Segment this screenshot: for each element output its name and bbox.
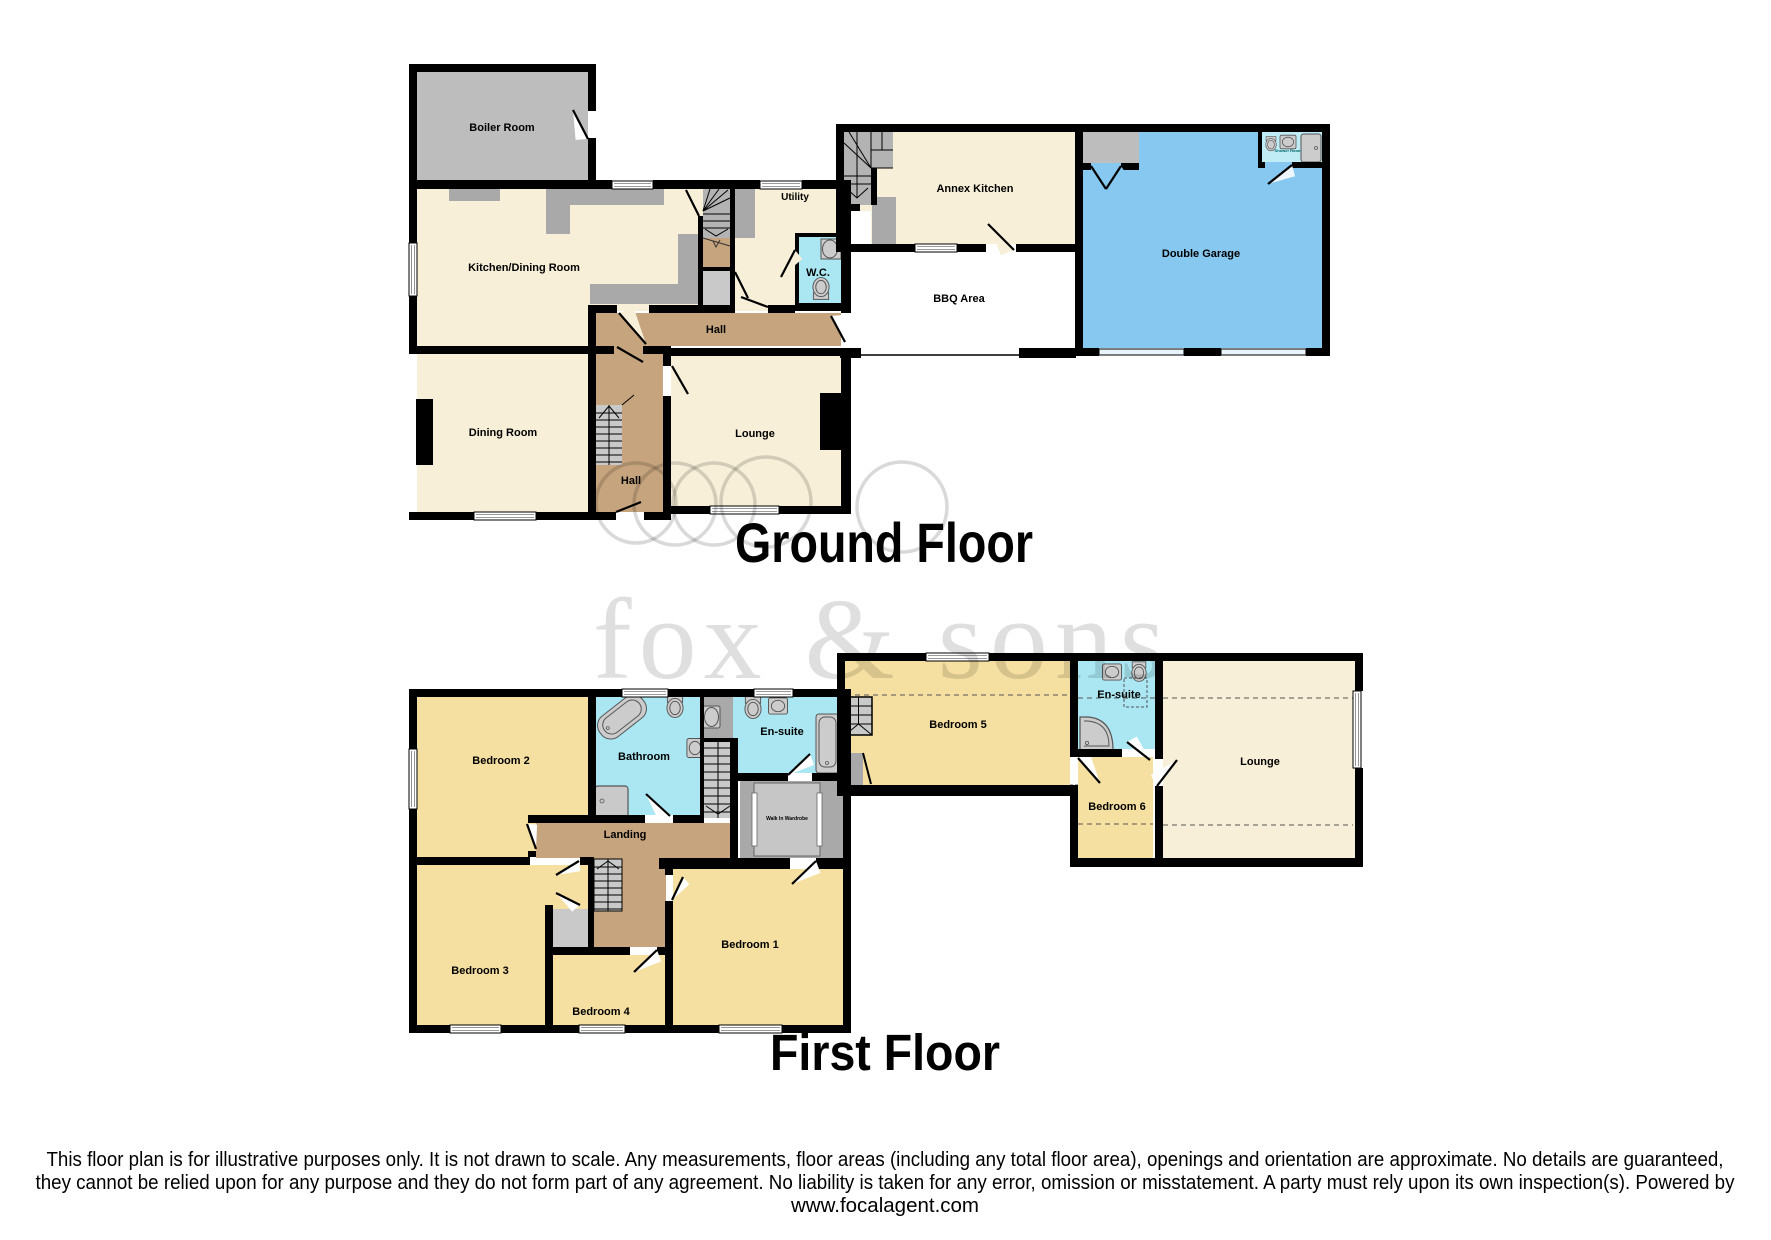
svg-text:Lounge: Lounge bbox=[1240, 756, 1280, 768]
svg-text:Shower Room: Shower Room bbox=[1275, 148, 1302, 153]
svg-text:Utility: Utility bbox=[781, 192, 809, 203]
svg-text:Bedroom 3: Bedroom 3 bbox=[451, 965, 508, 977]
svg-text:BBQ Area: BBQ Area bbox=[933, 293, 985, 305]
svg-text:Bedroom 5: Bedroom 5 bbox=[929, 719, 986, 731]
svg-text:Ground Floor: Ground Floor bbox=[735, 511, 1033, 574]
svg-text:This floor plan is for illustr: This floor plan is for illustrative purp… bbox=[47, 1148, 1724, 1171]
svg-text:Dining Room: Dining Room bbox=[469, 427, 538, 439]
svg-text:Landing: Landing bbox=[604, 829, 647, 841]
svg-text:www.focalagent.com: www.focalagent.com bbox=[790, 1194, 979, 1217]
svg-text:Walk In Wardrobe: Walk In Wardrobe bbox=[766, 816, 808, 822]
svg-text:they cannot be relied upon for: they cannot be relied upon for any purpo… bbox=[36, 1171, 1736, 1194]
svg-text:Lounge: Lounge bbox=[735, 428, 775, 440]
svg-text:Annex Kitchen: Annex Kitchen bbox=[936, 183, 1013, 195]
svg-text:Bedroom 4: Bedroom 4 bbox=[572, 1006, 630, 1018]
svg-text:W.C.: W.C. bbox=[806, 267, 830, 279]
svg-text:Double Garage: Double Garage bbox=[1162, 248, 1240, 260]
svg-text:Bathroom: Bathroom bbox=[618, 751, 670, 763]
svg-text:Hall: Hall bbox=[706, 324, 726, 336]
svg-text:Boiler Room: Boiler Room bbox=[469, 122, 535, 134]
svg-text:First Floor: First Floor bbox=[770, 1024, 1000, 1081]
svg-text:Bedroom 1: Bedroom 1 bbox=[721, 939, 778, 951]
svg-text:En-suite: En-suite bbox=[760, 726, 803, 738]
svg-text:Kitchen/Dining Room: Kitchen/Dining Room bbox=[468, 262, 580, 274]
svg-text:Bedroom 2: Bedroom 2 bbox=[472, 755, 529, 767]
svg-text:Bedroom 6: Bedroom 6 bbox=[1088, 801, 1145, 813]
svg-text:fox & sons: fox & sons bbox=[593, 576, 1165, 704]
